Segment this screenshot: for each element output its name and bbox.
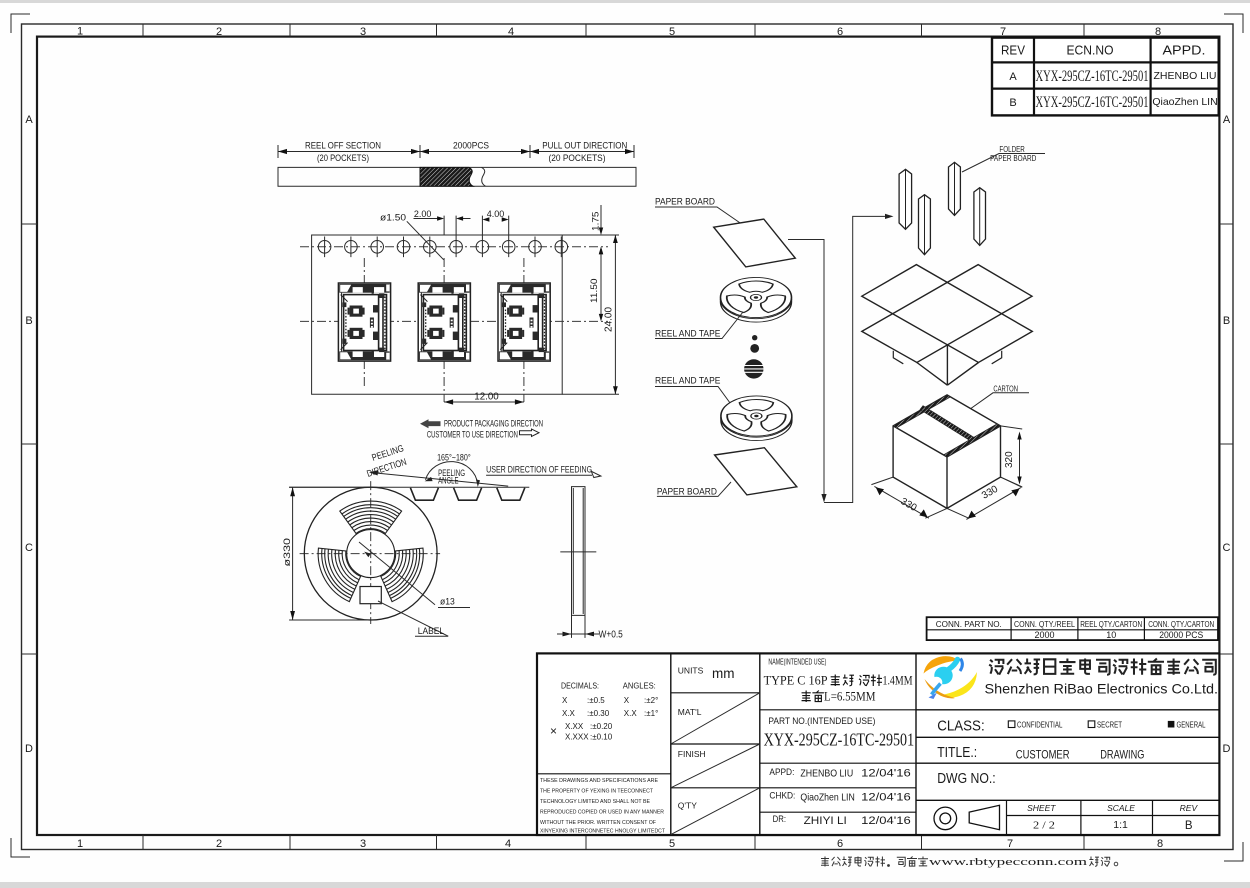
svg-text:www.rbtypecconn.com: www.rbtypecconn.com xyxy=(929,856,1088,868)
svg-text:2.00: 2.00 xyxy=(414,209,432,220)
svg-text:3: 3 xyxy=(360,838,366,850)
svg-text:X.X: X.X xyxy=(624,709,638,718)
svg-text:FINISH: FINISH xyxy=(678,749,706,759)
svg-text:20000 PCS: 20000 PCS xyxy=(1159,630,1203,640)
svg-text:XYX-295CZ-16TC-29501: XYX-295CZ-16TC-29501 xyxy=(1036,94,1149,111)
svg-text:1: 1 xyxy=(77,838,83,850)
svg-text:1.4MM: 1.4MM xyxy=(883,674,913,688)
svg-text:11.50: 11.50 xyxy=(589,279,600,304)
svg-text:REV: REV xyxy=(1001,43,1025,58)
svg-text:X.XXX: X.XXX xyxy=(565,733,589,742)
svg-text:Q'TY: Q'TY xyxy=(678,801,697,811)
svg-text:WITHOUT THE PRIOR. WRITTEN CON: WITHOUT THE PRIOR. WRITTEN CONSENT OF xyxy=(540,820,656,826)
svg-text:(20 POCKETS): (20 POCKETS) xyxy=(549,153,606,163)
svg-text:ø13: ø13 xyxy=(440,597,455,608)
svg-text:320: 320 xyxy=(1004,451,1015,468)
svg-text:USER DIRECTION OF FEEDING: USER DIRECTION OF FEEDING xyxy=(486,464,592,475)
svg-text:CARTON: CARTON xyxy=(993,383,1018,393)
svg-text:W+0.5: W+0.5 xyxy=(599,629,624,640)
svg-text:DRAWING: DRAWING xyxy=(1100,747,1144,761)
svg-text:CONN. QTY./CARTON: CONN. QTY./CARTON xyxy=(1148,620,1214,629)
svg-text:ZHENBO LIU: ZHENBO LIU xyxy=(800,768,853,780)
svg-text:SECRET: SECRET xyxy=(1097,721,1122,730)
svg-text:PAPER BOARD: PAPER BOARD xyxy=(655,197,715,207)
svg-text:A: A xyxy=(1223,114,1231,126)
svg-text:XYX-295CZ-16TC-29501: XYX-295CZ-16TC-29501 xyxy=(1036,68,1149,85)
svg-text:1.75: 1.75 xyxy=(591,212,602,232)
svg-text:12.00: 12.00 xyxy=(474,392,499,403)
svg-text:REEL AND TAPE: REEL AND TAPE xyxy=(655,376,720,386)
svg-text:TYPE C 16P: TYPE C 16P xyxy=(764,674,828,688)
svg-text:PRODUCT PACKAGING DIRECTION: PRODUCT PACKAGING DIRECTION xyxy=(444,419,543,429)
svg-text:CONFIDENTIAL: CONFIDENTIAL xyxy=(1017,721,1063,730)
svg-text:CONN. PART NO.: CONN. PART NO. xyxy=(936,620,1002,629)
svg-text:3: 3 xyxy=(360,26,366,38)
svg-text:ZHIYI LI: ZHIYI LI xyxy=(804,815,847,827)
svg-text:TECHNOLOGY LIMITED AND SHALL N: TECHNOLOGY LIMITED AND SHALL NOT BE xyxy=(540,799,650,805)
svg-text:APPD.: APPD. xyxy=(1163,43,1206,58)
svg-text:CUSTOMER: CUSTOMER xyxy=(1016,747,1070,761)
svg-text:FOLDER: FOLDER xyxy=(999,145,1025,154)
svg-text:XINYEXING INTERCONNETEC HNOLGY: XINYEXING INTERCONNETEC HNOLGY LIMITEDCT xyxy=(540,829,665,835)
svg-text:PAPER BOARD: PAPER BOARD xyxy=(657,486,717,496)
svg-text:2000: 2000 xyxy=(1034,630,1054,640)
svg-text:REEL QTY./CARTON: REEL QTY./CARTON xyxy=(1080,620,1142,629)
svg-text:6: 6 xyxy=(837,26,843,38)
svg-text:UNITS: UNITS xyxy=(678,666,704,676)
svg-text:ANGLE: ANGLE xyxy=(438,475,458,485)
svg-text:REV: REV xyxy=(1180,803,1199,813)
svg-text:QiaoZhen LIN: QiaoZhen LIN xyxy=(800,791,854,803)
svg-text::±0.10: :±0.10 xyxy=(590,733,613,742)
svg-text:(20 POCKETS): (20 POCKETS) xyxy=(317,153,369,163)
svg-text:1: 1 xyxy=(77,26,83,38)
svg-text:Shenzhen RiBao Electronics Co.: Shenzhen RiBao Electronics Co.Ltd. xyxy=(985,682,1219,697)
svg-text:mm: mm xyxy=(712,666,735,681)
svg-text:165°~180°: 165°~180° xyxy=(437,452,471,462)
svg-text:12/04'16: 12/04'16 xyxy=(861,791,911,803)
svg-text:B: B xyxy=(25,315,32,327)
svg-text:XYX-295CZ-16TC-29501: XYX-295CZ-16TC-29501 xyxy=(764,730,915,750)
svg-text::±1°: :±1° xyxy=(644,709,658,718)
svg-text:PULL OUT DIRECTION: PULL OUT DIRECTION xyxy=(542,141,627,151)
svg-text:DECIMALS:: DECIMALS: xyxy=(561,682,599,691)
svg-text:C: C xyxy=(1223,542,1231,554)
svg-text:X: X xyxy=(624,696,630,705)
svg-text:X: X xyxy=(562,696,568,705)
svg-text:THE PROPERTY OF YEXING IN TEEC: THE PROPERTY OF YEXING IN TEECONNECT xyxy=(540,789,653,795)
svg-text:1:1: 1:1 xyxy=(1113,819,1128,831)
svg-text:CONN. QTY./REEL: CONN. QTY./REEL xyxy=(1014,620,1076,629)
svg-text:SCALE: SCALE xyxy=(1107,803,1135,813)
svg-text:5: 5 xyxy=(669,838,675,850)
svg-text:5: 5 xyxy=(669,26,675,38)
svg-text::±0.20: :±0.20 xyxy=(590,722,613,731)
svg-text:L=6.55MM: L=6.55MM xyxy=(824,690,876,704)
svg-text:X.X: X.X xyxy=(562,709,576,718)
svg-text::±0.5: :±0.5 xyxy=(587,696,605,705)
svg-text:12/04'16: 12/04'16 xyxy=(861,815,911,827)
svg-text:APPD:: APPD: xyxy=(769,767,794,777)
svg-text:A: A xyxy=(1009,71,1017,83)
svg-text:SHEET: SHEET xyxy=(1027,803,1056,813)
svg-text:TITLE.:: TITLE.: xyxy=(937,745,977,761)
svg-text:2000PCS: 2000PCS xyxy=(453,141,489,151)
svg-text:B: B xyxy=(1185,820,1193,832)
svg-text:8: 8 xyxy=(1155,26,1161,38)
svg-text:10: 10 xyxy=(1106,630,1116,640)
svg-text:2: 2 xyxy=(216,26,222,38)
svg-text:4: 4 xyxy=(508,26,514,38)
svg-text:DR:: DR: xyxy=(773,814,786,824)
svg-text:MAT'L: MAT'L xyxy=(678,707,702,717)
svg-text:ø330: ø330 xyxy=(282,538,293,567)
svg-text:6: 6 xyxy=(837,838,843,850)
svg-text:GENERAL: GENERAL xyxy=(1177,721,1207,730)
svg-text:QiaoZhen LIN: QiaoZhen LIN xyxy=(1152,96,1217,108)
svg-text:PART NO.(INTENDED USE): PART NO.(INTENDED USE) xyxy=(768,716,875,726)
svg-text:ANGLES:: ANGLES: xyxy=(623,682,656,691)
svg-text:B: B xyxy=(1009,97,1016,109)
svg-text::±0.30: :±0.30 xyxy=(587,709,610,718)
svg-text:7: 7 xyxy=(1000,26,1006,38)
svg-text:D: D xyxy=(1223,743,1231,755)
svg-text:LABEL: LABEL xyxy=(418,626,444,637)
svg-text:A: A xyxy=(25,114,33,126)
svg-text:X.XX: X.XX xyxy=(565,722,584,731)
svg-text:REEL OFF SECTION: REEL OFF SECTION xyxy=(305,141,381,151)
svg-text:REEL AND TAPE: REEL AND TAPE xyxy=(655,329,720,339)
svg-text:B: B xyxy=(1223,315,1230,327)
svg-text:2: 2 xyxy=(216,838,222,850)
svg-text:D: D xyxy=(25,743,33,755)
svg-text:24.00: 24.00 xyxy=(604,307,615,332)
svg-text:ECN.NO: ECN.NO xyxy=(1067,43,1114,58)
svg-text:ø1.50: ø1.50 xyxy=(380,213,406,224)
svg-text:4.00: 4.00 xyxy=(487,209,505,220)
svg-text:CLASS:: CLASS: xyxy=(937,719,985,735)
svg-text:CUSTOMER TO USE DIRECTION: CUSTOMER TO USE DIRECTION xyxy=(427,430,518,440)
svg-text:CHKD:: CHKD: xyxy=(769,791,795,801)
svg-text:12/04'16: 12/04'16 xyxy=(861,768,911,780)
svg-text:REPRODUCED COPIED OR USED IN A: REPRODUCED COPIED OR USED IN ANY MANNER xyxy=(540,810,664,816)
svg-text:C: C xyxy=(25,542,33,554)
svg-text:NAME(INTENDED USE): NAME(INTENDED USE) xyxy=(768,657,826,667)
svg-text:THESE DRAWINGS AND SPECIFICATI: THESE DRAWINGS AND SPECIFICATIONS ARE xyxy=(540,778,658,784)
svg-text:4: 4 xyxy=(505,838,511,850)
svg-text:DWG NO.:: DWG NO.: xyxy=(937,771,996,787)
svg-text::±2°: :±2° xyxy=(644,696,658,705)
svg-text:2 / 2: 2 / 2 xyxy=(1033,820,1055,832)
svg-text:PAPER BOARD: PAPER BOARD xyxy=(990,154,1036,163)
svg-text:7: 7 xyxy=(1007,838,1013,850)
svg-text:×: × xyxy=(550,724,557,738)
svg-text:ZHENBO LIU: ZHENBO LIU xyxy=(1153,70,1216,82)
svg-text:8: 8 xyxy=(1157,838,1163,850)
